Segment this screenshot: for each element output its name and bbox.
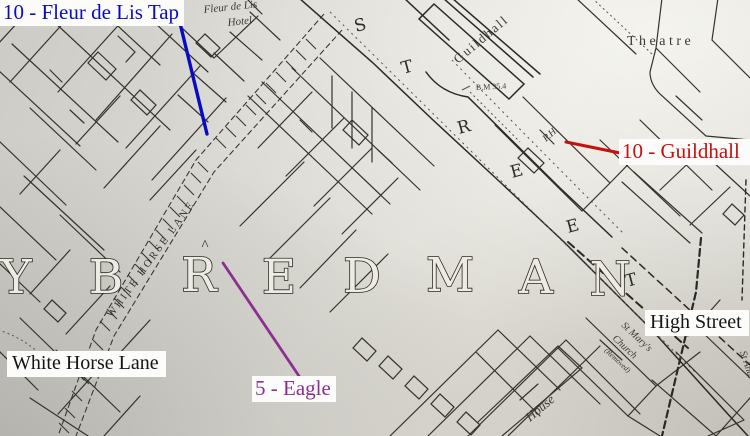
annotation-eagle: 5 - Eagle — [252, 376, 336, 402]
street-name-letters: S T R E E T — [352, 14, 640, 291]
map-text-hotel-line1: Fleur de Lis — [202, 0, 258, 16]
map-text-theatre: Theatre — [627, 34, 694, 49]
annotation-lines — [179, 19, 620, 379]
svg-text:M: M — [426, 248, 474, 303]
svg-text:E: E — [508, 160, 525, 183]
svg-text:S: S — [352, 14, 368, 36]
svg-text:R: R — [181, 248, 218, 303]
dotted-lines — [0, 0, 695, 372]
svg-text:R: R — [455, 116, 474, 139]
annotation-fleur-de-lis-tap: 10 - Fleur de Lis Tap — [0, 0, 184, 26]
caret-mark: ^ — [201, 238, 208, 254]
map-text-house: House — [522, 391, 558, 425]
map-text-hotel-line2: Hotel — [226, 14, 253, 29]
svg-text:A: A — [518, 250, 554, 305]
svg-text:N: N — [589, 252, 630, 307]
map-text-guildhall: Guildhall — [450, 12, 511, 67]
map-text-public-house: P.H. — [540, 125, 561, 145]
annotation-white-horse-lane: White Horse Lane — [7, 351, 166, 377]
street-network — [299, 0, 750, 436]
svg-text:E: E — [262, 250, 296, 305]
svg-text:Y: Y — [0, 250, 32, 305]
annotation-high-street: High Street — [645, 310, 749, 336]
svg-text:T: T — [399, 56, 416, 78]
annotation-guildhall: 10 - Guildhall — [619, 139, 750, 165]
map-text-edge-street: St Andr — [737, 350, 750, 382]
map-text-benchmark: B.M 35.4 — [476, 81, 507, 92]
map-screenshot: Fleur de Lis Hotel Guildhall Theatre B.M… — [0, 0, 750, 436]
svg-text:E: E — [564, 215, 581, 238]
svg-text:D: D — [343, 249, 381, 304]
